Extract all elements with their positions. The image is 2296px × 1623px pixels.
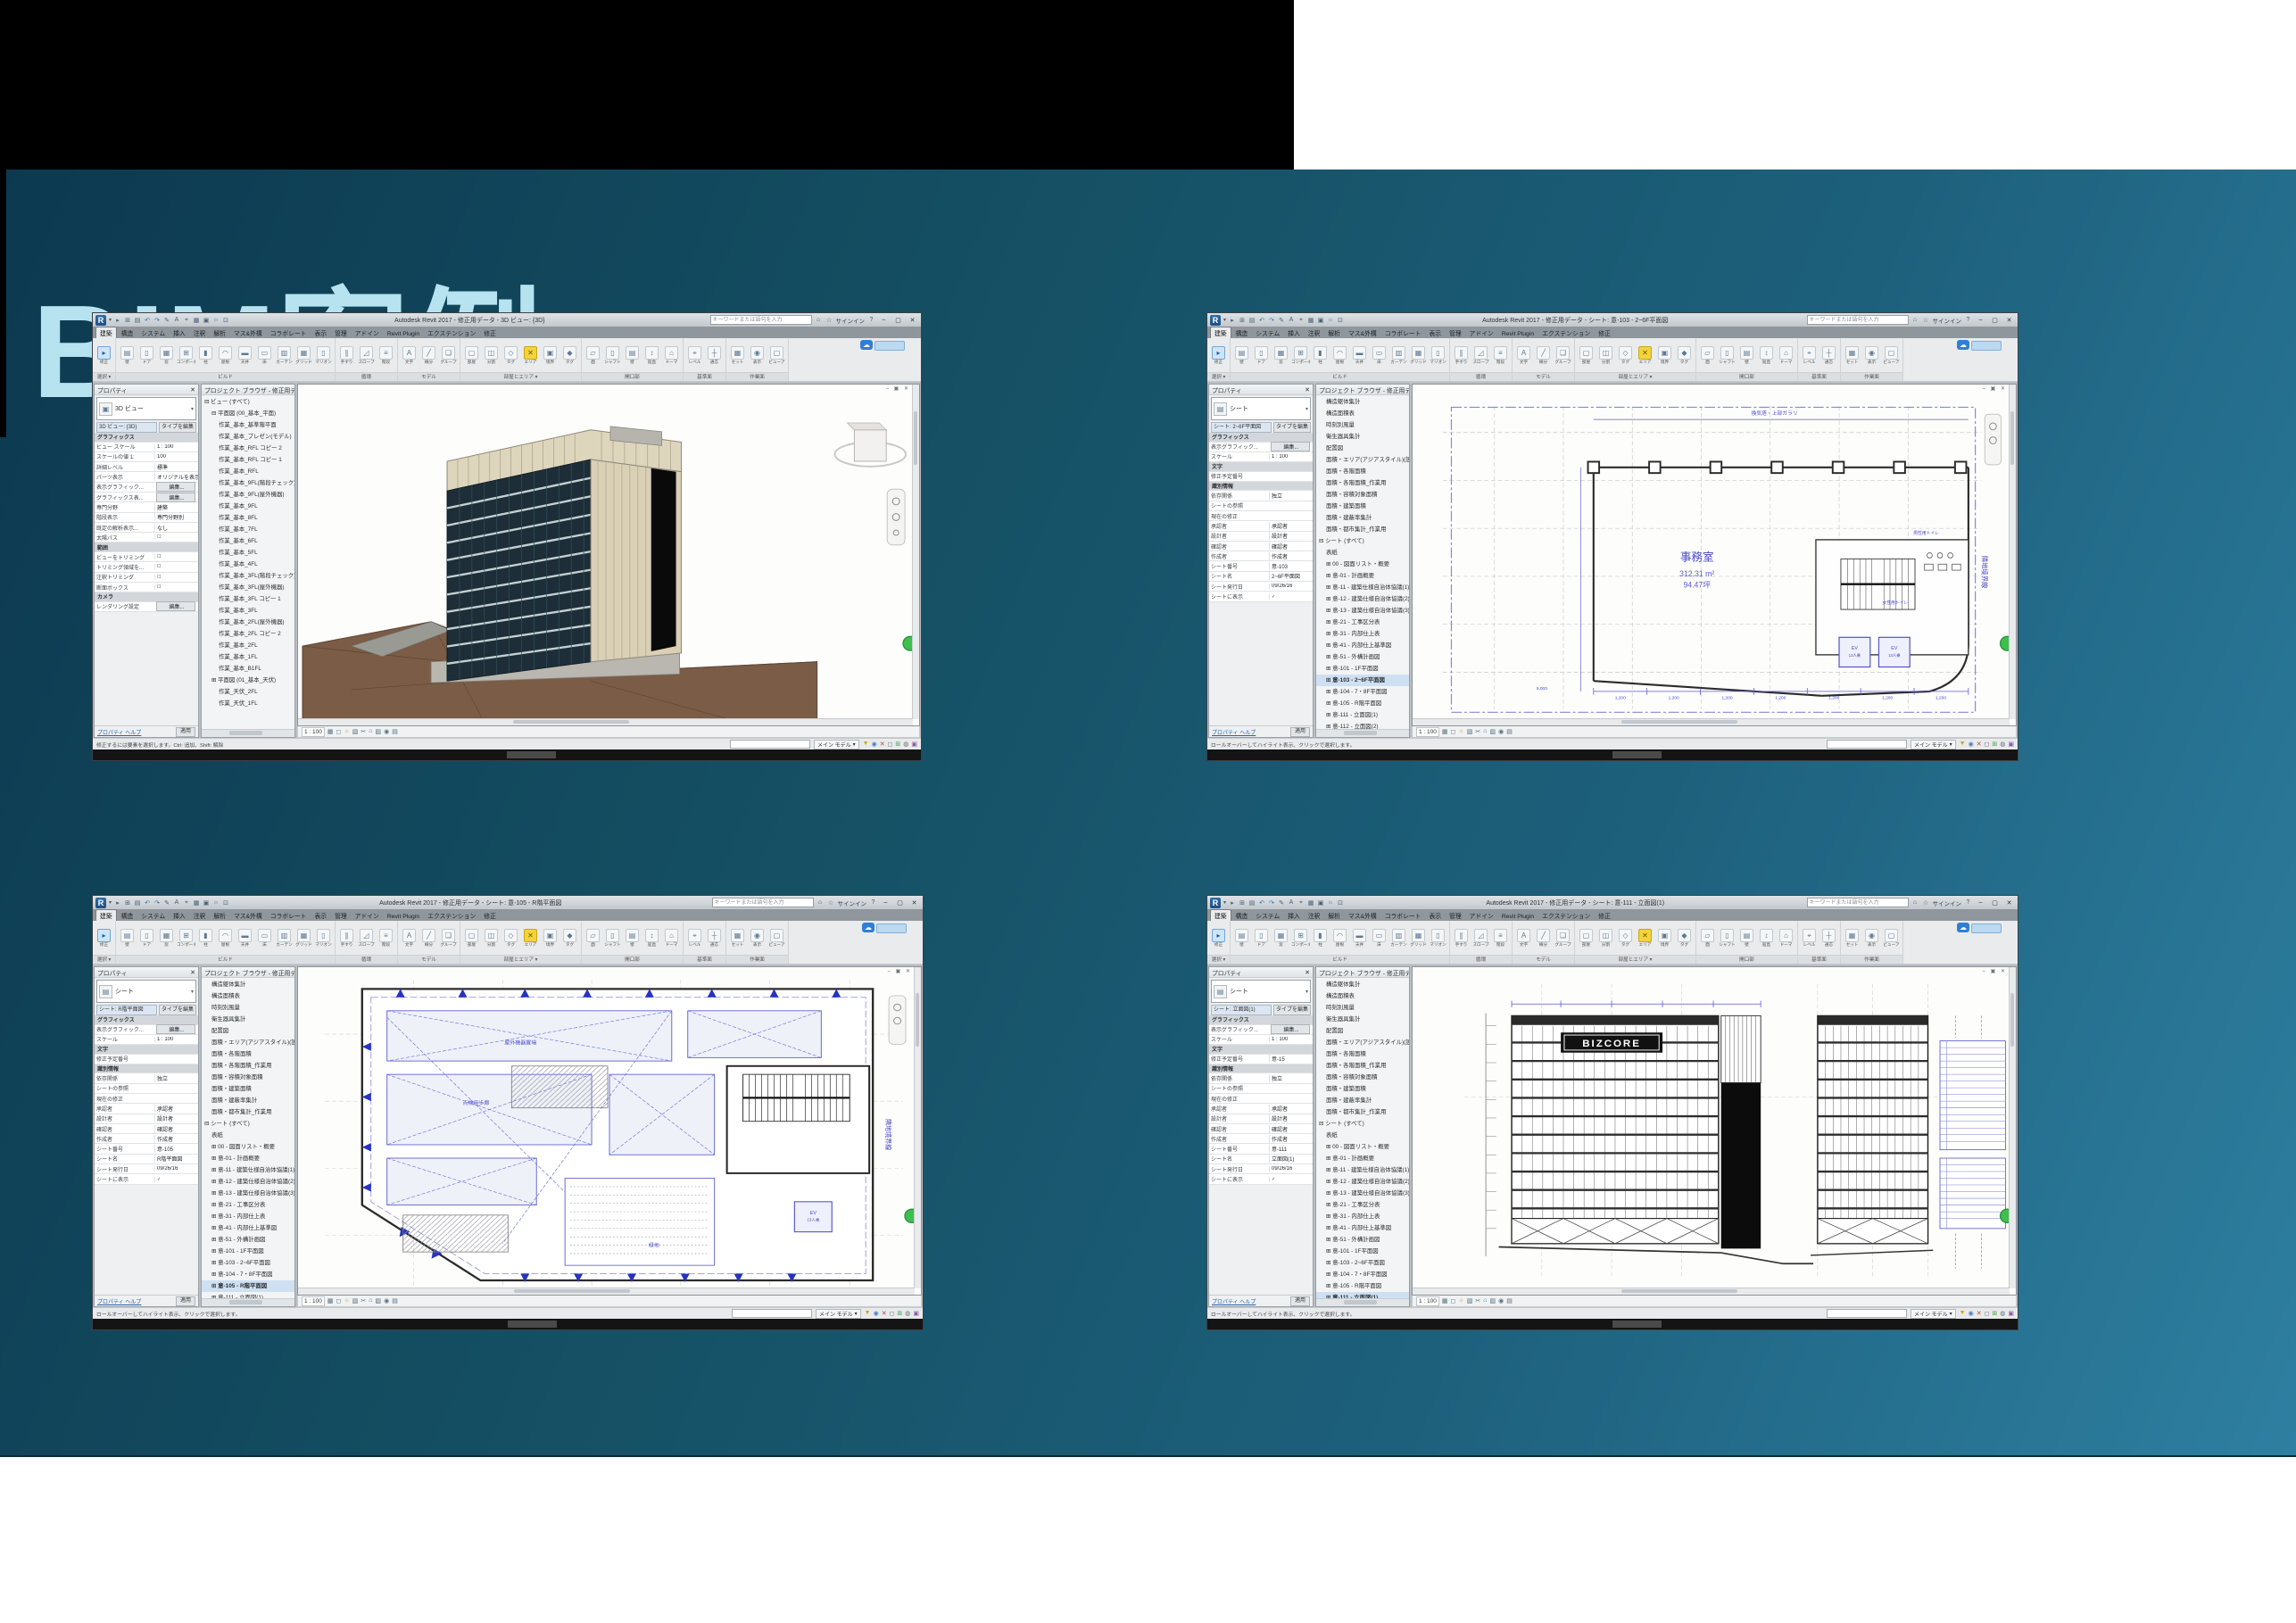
ribbon-tab[interactable]: コラボレート <box>1381 327 1425 338</box>
revit-logo[interactable]: R <box>1210 315 1221 326</box>
maximize-button[interactable]: ▢ <box>892 317 904 324</box>
ribbon-button[interactable]: ▤壁 <box>623 346 642 365</box>
ribbon-button[interactable]: ▱面 <box>1698 929 1717 948</box>
ribbon-button[interactable]: ◆タグ <box>560 929 579 948</box>
revit-logo[interactable]: R <box>95 898 106 908</box>
ribbon-tab[interactable]: 修正 <box>480 910 500 921</box>
minimize-button[interactable]: ‒ <box>880 899 891 906</box>
maximize-button[interactable]: ▢ <box>894 899 906 907</box>
ribbon-button[interactable]: ◫分割 <box>1596 346 1615 365</box>
filter-icon[interactable]: ◉ <box>872 741 877 748</box>
vertical-scrollbar[interactable] <box>2009 385 2016 719</box>
ribbon-button[interactable]: ◇タグ <box>1616 929 1635 948</box>
browser-tree-item[interactable]: 作業_基本_5FL <box>202 547 294 559</box>
property-row[interactable]: シート名2~6F平面図 <box>1209 572 1313 582</box>
ribbon-tab[interactable]: 解析 <box>1324 910 1344 921</box>
qat-icon[interactable]: A <box>1288 317 1295 324</box>
ribbon-button[interactable]: A文字 <box>400 929 419 948</box>
browser-tree-item[interactable]: 作業_基本_RFL <box>202 466 294 477</box>
browser-horizontal-scrollbar[interactable] <box>1316 1298 1409 1306</box>
ribbon-button[interactable]: ▤壁 <box>1232 346 1251 365</box>
ribbon-tab[interactable]: システム <box>1252 910 1283 921</box>
qat-icon[interactable]: ⊞ <box>1239 317 1246 324</box>
ribbon-button[interactable]: ▦グリッド <box>1409 346 1428 365</box>
ribbon-button[interactable]: ❏グループ <box>1554 929 1572 948</box>
ribbon-button[interactable]: ↕鉛直 <box>1757 929 1776 948</box>
browser-tree-item[interactable]: 作業_基本_2FL <box>202 640 294 651</box>
property-value[interactable]: 独立 <box>154 1074 198 1082</box>
browser-tree-item[interactable]: ⊟ 平面図 (00_基本_平面) <box>202 408 294 419</box>
ribbon-button[interactable]: ▦窓 <box>1272 346 1290 365</box>
property-row[interactable]: 作成者作成者 <box>1209 1134 1313 1144</box>
properties-help-link[interactable]: プロパティ ヘルプ <box>1212 728 1256 736</box>
filter-icon[interactable]: ◉ <box>1969 1310 1974 1317</box>
qat-icon[interactable]: ⊞ <box>124 317 131 324</box>
qat-icon[interactable]: A <box>173 317 180 324</box>
ribbon-button[interactable]: ▤壁 <box>118 346 137 365</box>
browser-tree-item[interactable]: 衛生器具集計 <box>1316 431 1409 443</box>
property-row[interactable]: 設計者設計者 <box>95 1114 198 1124</box>
apply-button[interactable]: 適用 <box>176 1296 195 1306</box>
browser-tree-item[interactable]: 作業_基本_3FL(屋外機器) <box>202 582 294 593</box>
view-control-icon[interactable]: ▧ <box>1467 728 1473 735</box>
ribbon-button[interactable]: ◇タグ <box>1616 346 1635 365</box>
property-row[interactable]: 承認者承認者 <box>95 1104 198 1114</box>
view-control-icon[interactable]: ▨ <box>1489 728 1496 735</box>
ribbon-button[interactable]: ↕鉛直 <box>642 929 661 948</box>
ribbon-button[interactable]: ❏グループ <box>439 346 458 365</box>
browser-tree-item[interactable]: 作業_基本_2FL(屋外機器) <box>202 617 294 628</box>
drawing-canvas[interactable]: ‒ ▣ ✕ <box>297 384 920 726</box>
browser-horizontal-scrollbar[interactable] <box>202 1298 294 1306</box>
property-value[interactable]: ✓ <box>154 1177 198 1182</box>
property-value[interactable]: 編集... <box>1271 442 1310 451</box>
property-value[interactable]: 確認者 <box>1269 1125 1313 1133</box>
ribbon-button[interactable]: ▯シャフト <box>1718 929 1737 948</box>
browser-tree-item[interactable]: 構造躯体集計 <box>1316 396 1409 408</box>
ribbon-button[interactable]: A文字 <box>1514 346 1533 365</box>
property-row[interactable]: 作成者作成者 <box>1209 551 1313 561</box>
ribbon-button[interactable]: ↕鉛直 <box>642 346 661 365</box>
property-row[interactable]: シートの参照 <box>1209 501 1313 511</box>
browser-tree-item[interactable]: 時刻別風量 <box>202 1002 294 1014</box>
ribbon-tab[interactable]: 修正 <box>1595 910 1614 921</box>
ribbon-tab[interactable]: 挿入 <box>1284 910 1304 921</box>
ribbon-button[interactable]: A文字 <box>400 346 419 365</box>
ribbon-button[interactable]: ▯ドア <box>137 346 156 365</box>
view-control-icon[interactable]: ▤ <box>392 1297 398 1304</box>
property-value[interactable]: 承認者 <box>154 1105 198 1113</box>
property-value[interactable]: 意-103 <box>1269 562 1313 570</box>
ribbon-button[interactable]: ⌂ドーマ <box>662 346 681 365</box>
ribbon-button[interactable]: ⊞コンポーネント <box>177 929 195 948</box>
view-control-icon[interactable]: ▦ <box>1442 1297 1448 1304</box>
property-row[interactable]: 修正予定番号意-15 <box>1209 1055 1313 1064</box>
home-icon[interactable]: ⌂ <box>1911 899 1919 906</box>
browser-tree-item[interactable]: ⊞ 00 - 図面リスト・概要 <box>202 1141 294 1153</box>
ribbon-button[interactable]: ▬天井 <box>236 929 254 948</box>
browser-tree-item[interactable]: ⊟ シート (すべて) <box>1316 535 1409 547</box>
ribbon-tab[interactable]: 注釈 <box>1305 910 1324 921</box>
browser-tree-item[interactable]: 時刻別風量 <box>1316 1002 1409 1014</box>
ribbon-button[interactable]: ▤壁 <box>623 929 642 948</box>
type-selector[interactable]: ▤ シート ▾ <box>1211 397 1311 420</box>
ribbon-button[interactable]: ≡階段 <box>1491 929 1510 948</box>
view-control-icon[interactable]: ▨ <box>375 1297 381 1304</box>
ribbon-button[interactable]: ▤壁 <box>1737 929 1756 948</box>
property-row[interactable]: スケール1 : 100 <box>95 1035 198 1045</box>
ribbon-button[interactable]: ⌂ドーマ <box>662 929 681 948</box>
ribbon-tab[interactable]: エクステンション <box>424 910 479 921</box>
minimize-button[interactable]: ‒ <box>1975 899 1986 906</box>
property-row[interactable]: シート名R階平面図 <box>95 1155 198 1164</box>
ribbon-button[interactable]: ┼通芯 <box>1819 346 1838 365</box>
qat-icon[interactable]: ↶ <box>1258 899 1265 907</box>
ribbon-button[interactable]: ▢部屋 <box>1577 346 1596 365</box>
ribbon-tab[interactable]: システム <box>137 327 169 338</box>
ribbon-button[interactable]: ∥手すり <box>1452 929 1471 948</box>
edit-type-button[interactable]: タイプを編集 <box>1273 1005 1311 1015</box>
ribbon-button[interactable]: ◫分割 <box>482 929 501 948</box>
browser-tree-item[interactable]: 作業_基本_1FL <box>202 651 294 663</box>
property-value[interactable]: 1 : 100 <box>1269 454 1313 460</box>
property-row[interactable]: レンダリング設定編集... <box>95 602 198 612</box>
view-control-icon[interactable]: ✂ <box>1475 728 1480 735</box>
ribbon-tab[interactable]: 建築 <box>95 909 117 921</box>
ribbon-button[interactable]: ▦セット <box>728 346 747 365</box>
edit-type-button[interactable]: タイプを編集 <box>1273 422 1311 433</box>
filter-icon[interactable]: ▣ <box>911 741 917 748</box>
ribbon-button[interactable]: ▦グリッド <box>294 929 313 948</box>
ribbon-tab[interactable]: 管理 <box>331 327 351 338</box>
ribbon-button[interactable]: ╱線分 <box>419 346 438 365</box>
property-row[interactable]: 承認者承認者 <box>1209 1104 1313 1114</box>
ribbon-button[interactable]: ▮柱 <box>1311 929 1330 948</box>
ribbon-button[interactable]: ⌖レベル <box>685 929 704 948</box>
apply-button[interactable]: 適用 <box>1290 1296 1310 1306</box>
view-control-icon[interactable]: ◉ <box>384 728 389 735</box>
ribbon-tab[interactable]: マス&外構 <box>1345 910 1380 921</box>
property-row[interactable]: ビューをトリミング☐ <box>95 552 198 562</box>
app-menu-arrow-icon[interactable]: ▾ <box>109 899 112 906</box>
property-value[interactable]: 編集... <box>1271 1024 1310 1034</box>
browser-tree-item[interactable]: ⊞ 意-101 - 1F平面図 <box>1316 1246 1409 1257</box>
property-value[interactable]: 作成者 <box>1269 1135 1313 1143</box>
browser-tree-item[interactable]: 面積・各階面積 <box>1316 1048 1409 1060</box>
ribbon-button[interactable]: ▸修正 <box>1209 346 1228 365</box>
view-control-icon[interactable]: ◻ <box>336 1297 342 1304</box>
ribbon-button[interactable]: ◿スロープ <box>357 346 376 365</box>
ribbon-button[interactable]: ◠屋根 <box>1330 346 1349 365</box>
panel-close-icon[interactable]: ✕ <box>190 386 195 393</box>
ribbon-tab[interactable]: エクステンション <box>1538 910 1594 921</box>
property-row[interactable]: グラフィックス表...編集... <box>95 493 198 502</box>
help-icon[interactable]: ? <box>869 899 877 906</box>
browser-tree-item[interactable]: 構造躯体集計 <box>202 979 294 990</box>
qat-icon[interactable]: ▦ <box>1307 317 1314 324</box>
ribbon-tab[interactable]: 解析 <box>1324 327 1344 338</box>
ribbon-button[interactable]: ▯マリオン <box>1429 346 1447 365</box>
ribbon-button[interactable]: ▯シャフト <box>603 346 622 365</box>
ribbon-button[interactable]: ▱面 <box>584 929 602 948</box>
qat-icon[interactable]: ↷ <box>1268 317 1275 324</box>
ribbon-button[interactable]: ▢部屋 <box>1577 929 1596 948</box>
ribbon-tab[interactable]: システム <box>137 910 169 921</box>
ribbon-button[interactable]: ▯マリオン <box>314 346 333 365</box>
browser-tree-item[interactable]: ⊞ 意-31 - 内部仕上表 <box>1316 1211 1409 1222</box>
browser-tree-item[interactable]: 面積・各階面積_作業用 <box>202 1060 294 1072</box>
browser-tree-item[interactable]: 面積・各階面積_作業用 <box>1316 477 1409 489</box>
close-button[interactable]: ✕ <box>2003 317 2015 324</box>
view-control-icon[interactable]: ▨ <box>375 728 381 735</box>
view-control-icon[interactable]: ▤ <box>392 728 398 735</box>
ribbon-button[interactable]: ❏グループ <box>1554 346 1572 365</box>
filter-icon[interactable]: ◻ <box>1985 1310 1990 1317</box>
properties-help-link[interactable]: プロパティ ヘルプ <box>1212 1297 1256 1305</box>
maximize-button[interactable]: ▢ <box>1989 317 2001 324</box>
drawing-canvas[interactable]: BIZCORE <box>1412 966 2017 1296</box>
property-value[interactable]: 設計者 <box>1269 1114 1313 1122</box>
filter-icon[interactable]: ⊞ <box>1992 1310 1997 1317</box>
browser-tree-item[interactable]: 面積・容積対象面積 <box>1316 1072 1409 1083</box>
browser-tree-item[interactable]: 表紙 <box>1316 1130 1409 1141</box>
design-option-combo[interactable]: メイン モデル ▾ <box>1911 1309 1956 1319</box>
qat-icon[interactable]: ⌖ <box>1297 899 1305 907</box>
browser-tree-item[interactable]: 作業_基本_9FL(階段チェック) <box>202 477 294 489</box>
ribbon-tab[interactable]: 注釈 <box>1305 327 1324 338</box>
ribbon-tab[interactable]: システム <box>1252 327 1283 338</box>
horizontal-scrollbar[interactable] <box>298 1288 915 1295</box>
ribbon-tab[interactable]: 表示 <box>311 910 330 921</box>
ribbon-button[interactable]: ▥カーテン <box>275 346 294 365</box>
ribbon-button[interactable]: ▣境界 <box>541 346 559 365</box>
property-row[interactable]: シートに表示✓ <box>95 1174 198 1184</box>
property-value[interactable]: 意-15 <box>1269 1055 1313 1063</box>
browser-tree-item[interactable]: 構造面積表 <box>1316 990 1409 1002</box>
design-option-combo[interactable]: メイン モデル ▾ <box>1911 740 1956 749</box>
view-window-controls[interactable]: ‒ ▣ ✕ <box>886 385 910 392</box>
ribbon-tab[interactable]: アドイン <box>352 910 383 921</box>
qat-icon[interactable]: A <box>1288 899 1295 907</box>
view-control-icon[interactable]: ▦ <box>327 1297 334 1304</box>
property-row[interactable]: 確認者確認者 <box>95 1124 198 1134</box>
ribbon-button[interactable]: ▢部屋 <box>462 346 481 365</box>
browser-tree-item[interactable]: 面積・建築面積 <box>1316 501 1409 512</box>
ribbon-tab[interactable]: 建築 <box>1210 909 1231 921</box>
browser-tree-item[interactable]: ⊞ 意-103 - 2~6F平面図 <box>202 1257 294 1269</box>
qat-icon[interactable]: ▸ <box>1229 899 1236 907</box>
ribbon-button[interactable]: ∥手すり <box>337 929 356 948</box>
ribbon-button[interactable]: ▢ビューア <box>1882 346 1901 365</box>
ribbon-button[interactable]: ◠屋根 <box>216 929 235 948</box>
ribbon-button[interactable]: ▦窓 <box>1272 929 1290 948</box>
qat-icon[interactable]: ↷ <box>1268 899 1275 907</box>
property-row[interactable]: シート名立面図(1) <box>1209 1155 1313 1164</box>
property-row[interactable]: 設計者設計者 <box>1209 1114 1313 1124</box>
ribbon-button[interactable]: ⌂ドーマ <box>1777 346 1795 365</box>
browser-tree-item[interactable]: ⊞ 意-13 - 建築仕様自治体協議(3) <box>202 1188 294 1199</box>
browser-tree-item[interactable]: 作業_基本_2FL コピー 2 <box>202 628 294 640</box>
qat-icon[interactable]: ⊡ <box>1337 317 1344 324</box>
ribbon-tab[interactable]: 注釈 <box>190 910 210 921</box>
ribbon-button[interactable]: ▬天井 <box>1350 929 1369 948</box>
browser-tree-item[interactable]: 作業_基本_6FL <box>202 535 294 547</box>
property-row[interactable]: 依存関係独立 <box>95 1073 198 1083</box>
drawing-canvas[interactable]: 換気塔・上部ガラリ <box>1412 384 2017 726</box>
sign-in-button[interactable]: サインイン <box>838 898 867 907</box>
ribbon-button[interactable]: ▢ビューア <box>767 929 786 948</box>
property-value[interactable]: ✓ <box>1269 594 1313 600</box>
browser-tree-item[interactable]: 衛生器具集計 <box>202 1014 294 1025</box>
filter-icon[interactable]: ⊞ <box>897 1310 902 1317</box>
browser-tree-item[interactable]: ⊞ 意-112 - 立面図(2) <box>1316 721 1409 729</box>
qat-icon[interactable]: ↷ <box>153 899 161 907</box>
ribbon-button[interactable]: ❏グループ <box>439 929 458 948</box>
browser-tree-item[interactable]: ⊞ 意-105 - R階平面図 <box>1316 698 1409 709</box>
browser-tree-item[interactable]: ⊞ 意-104 - 7・8F平面図 <box>1316 1269 1409 1280</box>
browser-tree-item[interactable]: 表紙 <box>202 1130 294 1141</box>
ribbon-button[interactable]: ◠屋根 <box>1330 929 1349 948</box>
view-control-icon[interactable]: ▧ <box>1467 1297 1473 1304</box>
qat-icon[interactable]: ↶ <box>144 317 151 324</box>
ribbon-tab[interactable]: マス&外構 <box>230 910 266 921</box>
view-control-icon[interactable]: ▤ <box>1506 728 1513 735</box>
ribbon-tab[interactable]: マス&外構 <box>1345 327 1380 338</box>
browser-tree-item[interactable]: 面積・建蔽率集計 <box>1316 1095 1409 1106</box>
view-window-controls[interactable]: ‒ ▣ ✕ <box>1983 968 2007 974</box>
ribbon-tab[interactable]: 挿入 <box>170 327 189 338</box>
ribbon-button[interactable]: ◿スロープ <box>357 929 376 948</box>
qat-icon[interactable]: ↶ <box>144 899 151 907</box>
close-button[interactable]: ✕ <box>2003 899 2015 907</box>
qat-icon[interactable]: ▦ <box>193 317 200 324</box>
browser-tree-item[interactable]: 配置図 <box>202 1025 294 1037</box>
property-row[interactable]: 階段表示専門分野別 <box>95 513 198 523</box>
property-row[interactable]: パーツ表示オリジナルを表示 <box>95 472 198 482</box>
ribbon-tab[interactable]: 解析 <box>210 327 229 338</box>
property-row[interactable]: 専門分野建築 <box>95 502 198 512</box>
qat-icon[interactable]: ▸ <box>114 899 121 907</box>
ribbon-button[interactable]: ↕鉛直 <box>1757 346 1776 365</box>
ribbon-button[interactable]: ▢ビューア <box>767 346 786 365</box>
property-row[interactable]: シート番号意-103 <box>1209 561 1313 571</box>
browser-tree-item[interactable]: ⊞ 意-31 - 内部仕上表 <box>202 1211 294 1222</box>
qat-icon[interactable]: ☼ <box>212 317 220 324</box>
filter-icon[interactable]: ◻ <box>890 1310 895 1317</box>
property-row[interactable]: 既定の解析表示...なし <box>95 523 198 533</box>
view-scale-button[interactable]: 1 : 100 <box>1416 727 1439 737</box>
type-selector[interactable]: ▣ 3D ビュー ▾ <box>96 397 196 420</box>
ribbon-button[interactable]: ⌂ドーマ <box>1777 929 1795 948</box>
ribbon-button[interactable]: ▦セット <box>1843 929 1861 948</box>
browser-tree-item[interactable]: ⊞ 意-101 - 1F平面図 <box>1316 663 1409 675</box>
browser-tree-item[interactable]: ⊞ 意-111 - 立面図(1) <box>1316 1292 1409 1298</box>
property-value[interactable]: 09/26/16 <box>1269 584 1313 589</box>
property-value[interactable]: 設計者 <box>1269 532 1313 540</box>
filter-icon[interactable]: ◻ <box>888 741 893 748</box>
property-value[interactable]: 編集... <box>156 493 195 502</box>
browser-tree-item[interactable]: ⊞ 意-41 - 内部仕上基準図 <box>1316 640 1409 651</box>
type-selector[interactable]: ▤ シート ▾ <box>1211 980 1311 1003</box>
ribbon-button[interactable]: ▸修正 <box>95 346 113 365</box>
browser-tree-item[interactable]: ⊞ 意-12 - 建築仕様自治体協議(2) <box>202 1176 294 1188</box>
ribbon-button[interactable]: ⊞コンポーネント <box>177 346 195 365</box>
property-row[interactable]: 表示グラフィック...編集... <box>1209 443 1313 452</box>
property-row[interactable]: 承認者承認者 <box>1209 521 1313 531</box>
ribbon-button[interactable]: ∥手すり <box>1452 346 1471 365</box>
infocenter-search-input[interactable] <box>1807 898 1909 907</box>
browser-tree-item[interactable]: ⊞ 意-103 - 2~6F平面図 <box>1316 675 1409 686</box>
view-control-icon[interactable]: ▤ <box>1506 1297 1513 1304</box>
view-control-icon[interactable]: ▧ <box>352 1297 359 1304</box>
browser-tree-item[interactable]: ⊞ 平面図 (01_基本_天伏) <box>202 675 294 686</box>
ribbon-button[interactable]: ⌖レベル <box>685 346 704 365</box>
filter-icon[interactable]: ✕ <box>882 1310 887 1317</box>
ribbon-button[interactable]: ▣境界 <box>541 929 559 948</box>
ribbon-button[interactable]: ✕エリア <box>521 929 540 948</box>
ribbon-tab[interactable]: エクステンション <box>1538 327 1594 338</box>
browser-tree-item[interactable]: ⊞ 意-21 - 工事区分表 <box>202 1199 294 1211</box>
favorites-star-icon[interactable]: ☆ <box>1922 899 1930 907</box>
ribbon-button[interactable]: ◿スロープ <box>1471 929 1490 948</box>
ribbon-button[interactable]: ▯マリオン <box>1429 929 1447 948</box>
ribbon-tab[interactable]: 管理 <box>1446 910 1465 921</box>
ribbon-button[interactable]: ▤壁 <box>1737 346 1756 365</box>
ribbon-button[interactable]: ✕エリア <box>521 346 540 365</box>
favorites-star-icon[interactable]: ☆ <box>825 317 833 324</box>
property-row[interactable]: シート発行日09/26/16 <box>1209 1164 1313 1174</box>
browser-tree-item[interactable]: 面積・エリア(アジアスタイル)(設定) <box>202 1037 294 1048</box>
horizontal-scrollbar[interactable] <box>1413 1288 2010 1295</box>
favorites-star-icon[interactable]: ☆ <box>827 899 835 907</box>
help-icon[interactable]: ? <box>1964 317 1972 323</box>
browser-tree-item[interactable]: ⊞ 意-01 - 計画概要 <box>202 1153 294 1164</box>
view-control-icon[interactable]: ◻ <box>336 728 342 735</box>
vertical-scrollbar[interactable] <box>2009 967 2016 1288</box>
qat-icon[interactable]: ▦ <box>1307 899 1314 907</box>
ribbon-button[interactable]: ▤壁 <box>1232 929 1251 948</box>
ribbon-button[interactable]: ▯シャフト <box>1718 346 1737 365</box>
qat-icon[interactable]: ▣ <box>1317 899 1324 907</box>
view-control-icon[interactable]: ✂ <box>361 1297 366 1304</box>
sign-in-button[interactable]: サインイン <box>1933 316 1962 325</box>
property-row[interactable]: シートに表示✓ <box>1209 1174 1313 1184</box>
property-value[interactable]: 編集... <box>156 482 195 492</box>
browser-tree-item[interactable]: ⊞ 意-11 - 建築仕様自治体協議(1) <box>1316 1164 1409 1176</box>
ribbon-button[interactable]: ▸修正 <box>95 929 113 948</box>
browser-tree-item[interactable]: ⊞ 意-21 - 工事区分表 <box>1316 1199 1409 1211</box>
property-value[interactable]: 作成者 <box>154 1135 198 1143</box>
ribbon-button[interactable]: ▯ドア <box>1252 346 1271 365</box>
browser-tree-item[interactable]: ⊞ 意-51 - 外構計画図 <box>1316 1234 1409 1246</box>
ribbon-button[interactable]: ┼通芯 <box>1819 929 1838 948</box>
qat-icon[interactable]: ⌖ <box>1297 317 1305 324</box>
view-control-icon[interactable]: ◉ <box>1498 1297 1504 1304</box>
browser-tree-item[interactable]: ⊞ 意-11 - 建築仕様自治体協議(1) <box>1316 582 1409 593</box>
browser-tree-item[interactable]: 作業_天伏_2FL <box>202 686 294 698</box>
qat-icon[interactable]: ⊡ <box>1337 899 1344 907</box>
infocenter-search-input[interactable] <box>712 898 814 907</box>
property-row[interactable]: 設計者設計者 <box>1209 532 1313 542</box>
ribbon-tab[interactable]: コラボレート <box>1381 910 1425 921</box>
ribbon-button[interactable]: ▦セット <box>728 929 747 948</box>
ribbon-button[interactable]: ◿スロープ <box>1471 346 1490 365</box>
filter-icon[interactable]: ✕ <box>1977 741 1982 748</box>
apply-button[interactable]: 適用 <box>1290 727 1310 737</box>
qat-icon[interactable]: ⌖ <box>183 899 190 907</box>
filter-icon[interactable]: ◍ <box>905 1310 910 1317</box>
qat-icon[interactable]: ✎ <box>163 899 170 907</box>
